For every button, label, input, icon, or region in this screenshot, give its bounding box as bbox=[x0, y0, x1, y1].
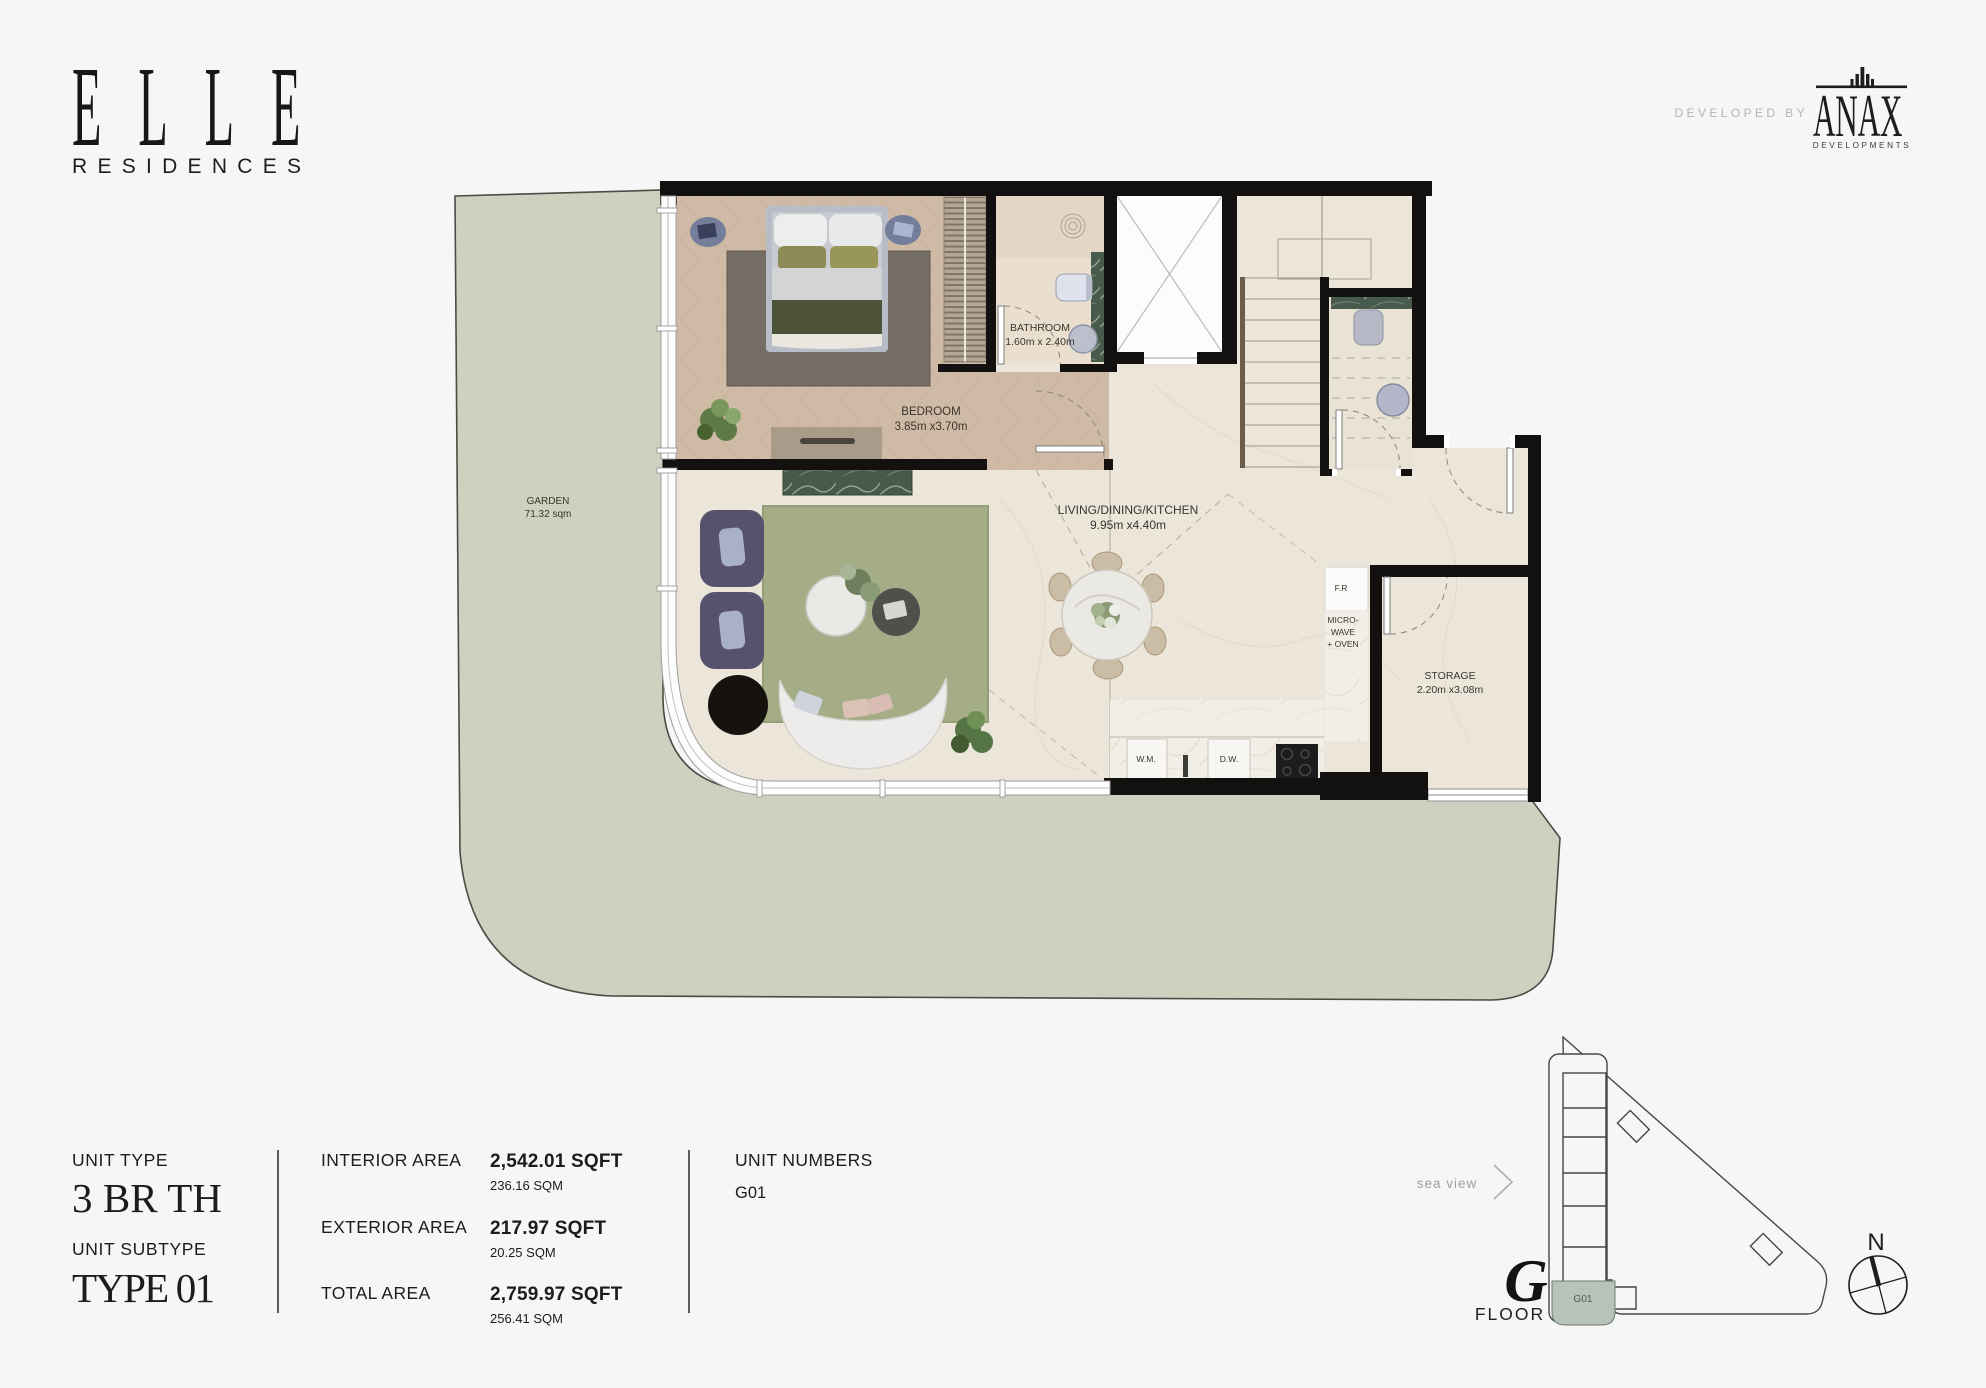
svg-text:G01: G01 bbox=[1574, 1294, 1593, 1305]
svg-text:UNIT SUBTYPE: UNIT SUBTYPE bbox=[72, 1239, 206, 1259]
svg-text:256.41 SQM: 256.41 SQM bbox=[490, 1311, 563, 1326]
svg-text:71.32 sqm: 71.32 sqm bbox=[525, 509, 572, 520]
svg-text:ELLE: ELLE bbox=[72, 43, 337, 171]
svg-text:F.R: F.R bbox=[1335, 583, 1348, 593]
svg-text:D.W.: D.W. bbox=[1220, 754, 1238, 764]
svg-text:UNIT NUMBERS: UNIT NUMBERS bbox=[735, 1150, 873, 1170]
svg-text:N: N bbox=[1867, 1229, 1884, 1256]
svg-text:INTERIOR AREA: INTERIOR AREA bbox=[321, 1150, 461, 1170]
svg-text:G01: G01 bbox=[735, 1184, 766, 1202]
svg-text:TOTAL AREA: TOTAL AREA bbox=[321, 1283, 431, 1303]
svg-text:WAVE: WAVE bbox=[1331, 627, 1355, 637]
svg-text:sea view: sea view bbox=[1417, 1176, 1478, 1191]
svg-text:DEVELOPMENTS: DEVELOPMENTS bbox=[1813, 141, 1912, 150]
svg-text:1.60m x 2.40m: 1.60m x 2.40m bbox=[1005, 336, 1075, 348]
svg-text:2,542.01 SQFT: 2,542.01 SQFT bbox=[490, 1151, 623, 1172]
svg-text:2.20m x3.08m: 2.20m x3.08m bbox=[1417, 684, 1484, 696]
svg-text:UNIT TYPE: UNIT TYPE bbox=[72, 1150, 168, 1170]
svg-text:TYPE 01: TYPE 01 bbox=[72, 1265, 218, 1311]
svg-text:3 BR TH: 3 BR TH bbox=[72, 1175, 225, 1221]
svg-text:STORAGE: STORAGE bbox=[1424, 670, 1475, 682]
svg-text:ANAX: ANAX bbox=[1813, 83, 1910, 149]
svg-text:W.M.: W.M. bbox=[1136, 754, 1155, 764]
svg-text:LIVING/DINING/KITCHEN: LIVING/DINING/KITCHEN bbox=[1058, 503, 1199, 517]
svg-text:BATHROOM: BATHROOM bbox=[1010, 322, 1070, 334]
svg-text:236.16 SQM: 236.16 SQM bbox=[490, 1178, 563, 1193]
svg-text:BEDROOM: BEDROOM bbox=[901, 406, 960, 418]
svg-text:3.85m x3.70m: 3.85m x3.70m bbox=[895, 421, 968, 433]
svg-text:+ OVEN: + OVEN bbox=[1327, 639, 1358, 649]
svg-text:EXTERIOR AREA: EXTERIOR AREA bbox=[321, 1217, 467, 1237]
svg-text:GARDEN: GARDEN bbox=[527, 496, 570, 507]
svg-text:20.25 SQM: 20.25 SQM bbox=[490, 1245, 556, 1260]
svg-text:217.97 SQFT: 217.97 SQFT bbox=[490, 1218, 606, 1239]
svg-text:9.95m x4.40m: 9.95m x4.40m bbox=[1090, 518, 1166, 532]
svg-text:DEVELOPED BY: DEVELOPED BY bbox=[1674, 106, 1808, 120]
svg-text:2,759.97 SQFT: 2,759.97 SQFT bbox=[490, 1284, 623, 1305]
svg-text:FLOOR: FLOOR bbox=[1475, 1304, 1545, 1324]
svg-text:RESIDENCES: RESIDENCES bbox=[72, 155, 310, 178]
svg-text:MICRO-: MICRO- bbox=[1327, 615, 1358, 625]
